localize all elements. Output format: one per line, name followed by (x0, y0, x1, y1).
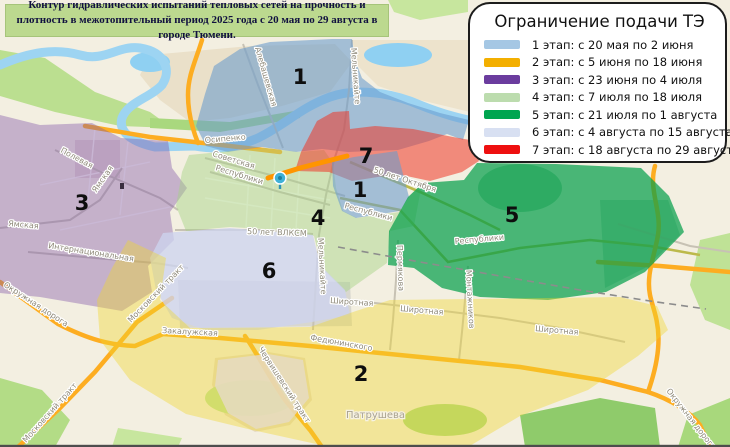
stage2-label: 2 этап: с 5 июня по 18 июня (532, 55, 702, 69)
stage6-swatch (484, 128, 520, 137)
stage1-swatch (484, 40, 520, 49)
stage1-swatch-rect (484, 40, 520, 49)
stage4-swatch-rect (484, 93, 520, 102)
zone-label-7: 7 (359, 144, 374, 168)
map-title-text: Контур гидравлических испытаний тепловых… (12, 0, 382, 43)
stage7-swatch (484, 145, 520, 154)
screenshot-root: Алебашевская Мельникайте Осипенко Советс… (0, 0, 730, 447)
stage4-label: 4 этап: с 7 июля по 18 июля (532, 90, 702, 104)
legend-row-stage3: 3 этап: с 23 июня по 4 июля (484, 71, 715, 89)
monument-icon (120, 183, 124, 189)
legend-title: Ограничение подачи ТЭ (484, 12, 715, 31)
map-title: Контур гидравлических испытаний тепловых… (5, 4, 389, 37)
stage3-label: 3 этап: с 23 июня по 4 июля (532, 73, 702, 87)
legend-row-stage5: 5 этап: с 21 июля по 1 августа (484, 106, 715, 124)
zone-label-2: 2 (354, 362, 369, 386)
stage7-swatch-rect (484, 145, 520, 154)
legend-row-stage1: 1 этап: с 20 мая по 2 июня (484, 36, 715, 54)
legend-panel: Ограничение подачи ТЭ 1 этап: с 20 мая п… (468, 2, 727, 163)
stage1-label: 1 этап: с 20 мая по 2 июня (532, 38, 693, 52)
stage6-swatch-rect (484, 128, 520, 137)
legend-row-stage4: 4 этап: с 7 июля по 18 июля (484, 89, 715, 107)
stage3-swatch-rect (484, 75, 520, 84)
stage6-label: 6 этап: с 4 августа по 15 августа (532, 125, 730, 139)
zone-label-3: 3 (75, 191, 90, 215)
lake-alebashevo (364, 43, 432, 67)
stage4-swatch (484, 93, 520, 102)
stage3-swatch (484, 75, 520, 84)
legend-row-stage6: 6 этап: с 4 августа по 15 августа (484, 124, 715, 142)
stage5-label: 5 этап: с 21 июля по 1 августа (532, 108, 717, 122)
stage7-label: 7 этап: с 18 августа по 29 августа (532, 143, 730, 157)
stage5-swatch-rect (484, 110, 520, 119)
street-label-patrusheva: Патрушева (346, 410, 405, 421)
zone-label-4: 4 (311, 206, 326, 230)
legend-row-stage2: 2 этап: с 5 июня по 18 июня (484, 54, 715, 72)
legend-row-stage7: 7 этап: с 18 августа по 29 августа (484, 141, 715, 159)
zone-label-5: 5 (505, 203, 520, 227)
street-label-permyakova: Пермякова (395, 245, 406, 292)
zone-label-6: 6 (262, 259, 277, 283)
stage2-swatch (484, 58, 520, 67)
zone-label-1b: 1 (353, 178, 368, 202)
stage2-swatch-rect (484, 58, 520, 67)
stage5-swatch (484, 110, 520, 119)
zone-label-1: 1 (293, 65, 308, 89)
